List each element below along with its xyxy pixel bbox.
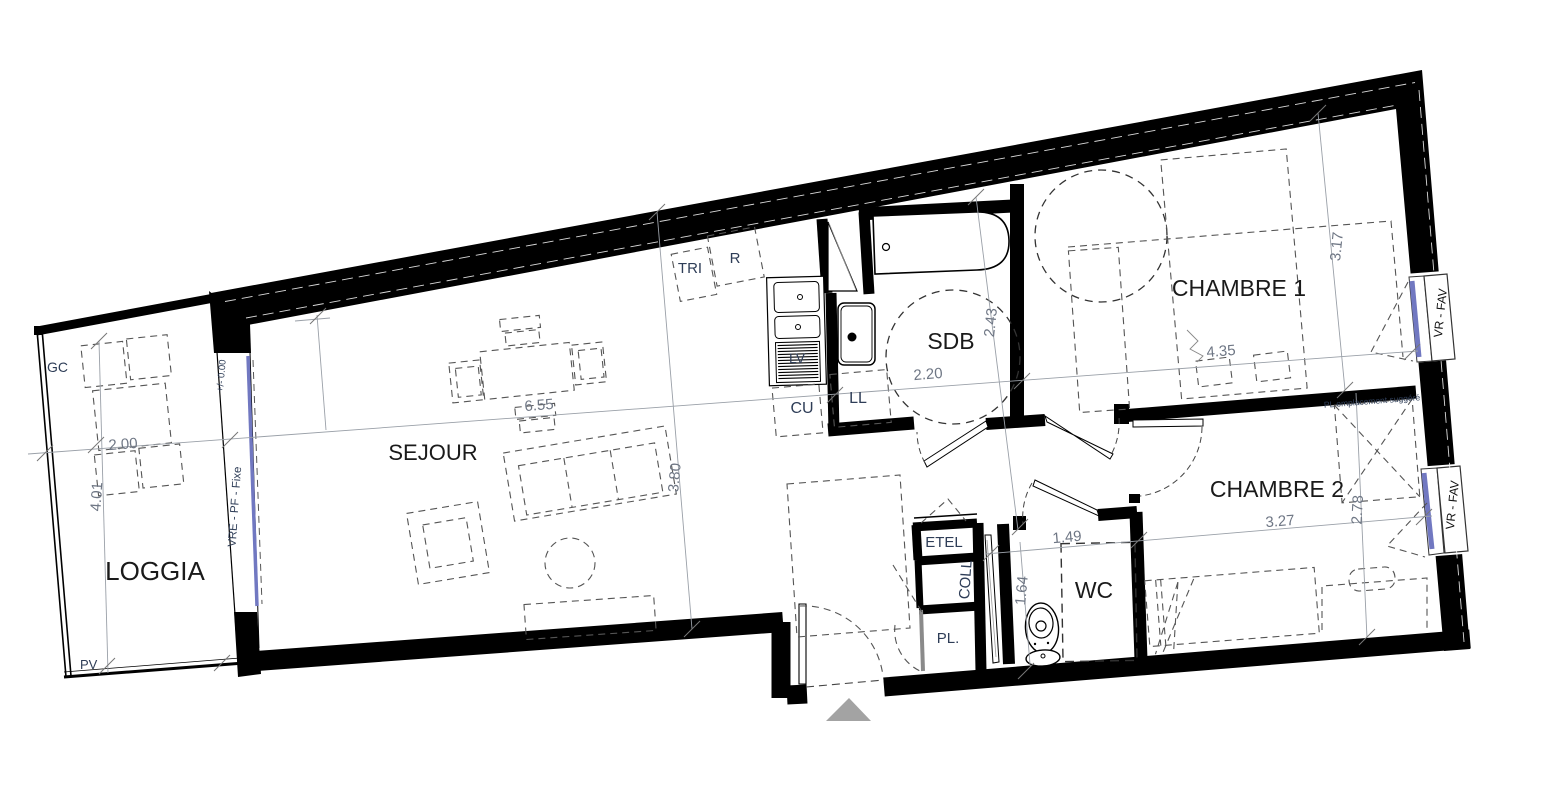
svg-text:2.20: 2.20 [913,365,943,384]
svg-text:ETEL: ETEL [925,534,963,551]
svg-text:CHAMBRE 2: CHAMBRE 2 [1210,476,1344,502]
svg-text:TRI: TRI [678,260,702,277]
svg-text:2.43: 2.43 [981,307,1001,338]
svg-text:R: R [730,250,741,267]
svg-text:3.17: 3.17 [1327,231,1347,262]
svg-text:COLL: COLL [956,560,976,600]
svg-text:LV: LV [789,350,806,366]
svg-text:PV: PV [80,657,98,672]
svg-text:PL.: PL. [937,630,960,647]
svg-text:WC: WC [1075,577,1113,603]
svg-text:1.64: 1.64 [1012,575,1031,606]
svg-text:2.00: 2.00 [108,435,138,454]
svg-text:4.01: 4.01 [87,482,106,512]
svg-text:4.35: 4.35 [1206,342,1236,361]
svg-text:1.49: 1.49 [1052,528,1083,547]
svg-text:3.27: 3.27 [1265,512,1295,531]
svg-text:LOGGIA: LOGGIA [105,556,205,586]
svg-text:3.80: 3.80 [665,462,684,493]
svg-text:6.55: 6.55 [524,396,554,415]
svg-text:2.78: 2.78 [1349,495,1368,525]
svg-text:GC: GC [47,359,68,375]
svg-text:LL: LL [849,390,867,407]
svg-text:SDB: SDB [927,328,974,354]
svg-text:SEJOUR: SEJOUR [388,440,477,465]
svg-text:CHAMBRE 1: CHAMBRE 1 [1172,275,1306,301]
svg-text:CU: CU [790,400,813,417]
